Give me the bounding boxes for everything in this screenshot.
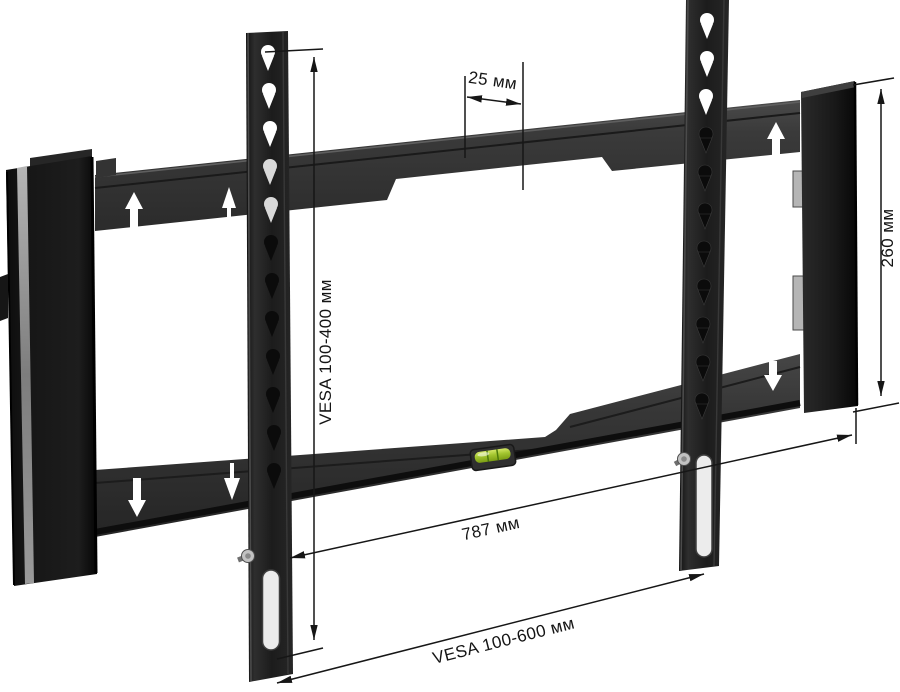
dimension-vesa-horizontal: VESA 100-600 мм	[277, 574, 704, 683]
dimension-label: 260 мм	[878, 209, 897, 268]
dimension-label: 787 мм	[460, 513, 522, 544]
extension-line	[853, 403, 899, 412]
top-rail-end-tab	[96, 158, 116, 178]
strip-bottom-slot	[696, 455, 712, 557]
dimension-arrow	[277, 574, 704, 683]
strip-bottom-slot	[263, 570, 280, 650]
dimension-label: VESA 100-600 мм	[431, 613, 577, 667]
dimension-label: VESA 100-400 мм	[316, 279, 335, 425]
left-end-cap	[0, 149, 97, 586]
bracket-diagram: 25 мм VESA 100-400 мм 260 мм 787 мм VESA…	[0, 0, 900, 692]
screw-center	[681, 456, 687, 462]
screw-center	[245, 553, 251, 559]
cap-side-tab	[0, 274, 8, 321]
dimension-arrow	[467, 97, 521, 104]
screw-left	[238, 550, 255, 563]
dimension-label: 25 мм	[467, 68, 518, 94]
vesa-strip-right	[679, 0, 729, 571]
dimension-hole-pitch: 25 мм	[465, 62, 523, 190]
cap-body	[801, 81, 858, 413]
screw-right	[675, 453, 691, 466]
dimension-cap-height: 260 мм	[853, 78, 899, 412]
vesa-strip-left	[246, 31, 293, 682]
right-end-cap	[793, 81, 858, 413]
extension-line	[853, 78, 894, 85]
